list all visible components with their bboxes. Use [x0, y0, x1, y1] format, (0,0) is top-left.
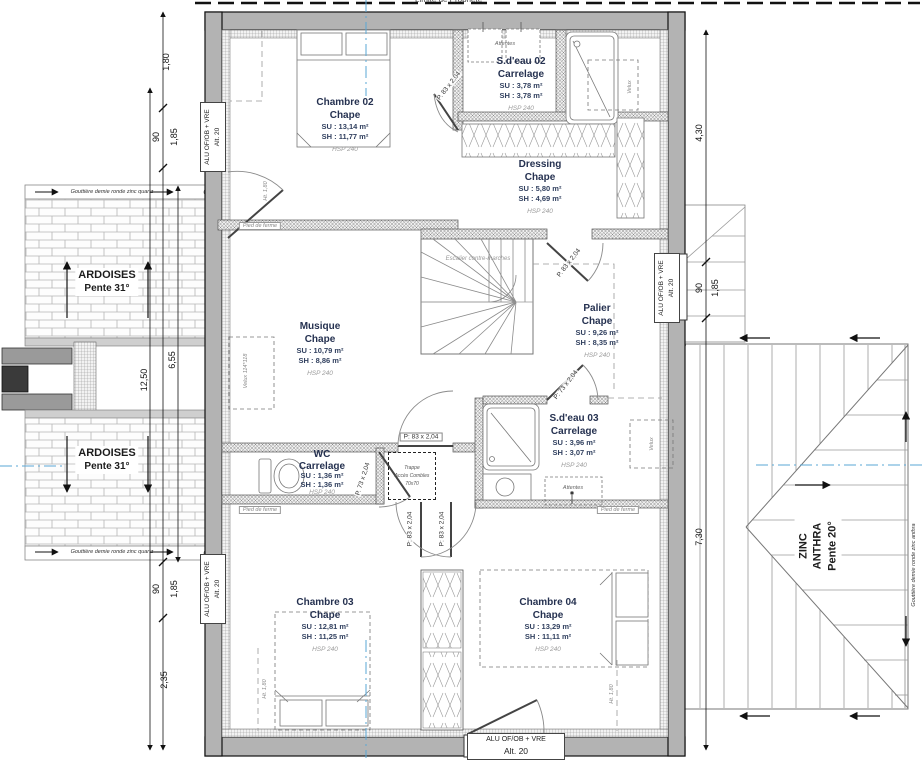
room-label-wc: WC Carrelage SU : 1,36 m² SH : 1,36 m² H…: [299, 449, 345, 497]
closets: [421, 570, 463, 730]
pied-de-ferme-3: Pied de ferme: [597, 506, 639, 514]
gutter-label-bottom: Gouttière demie ronde zinc quartz: [71, 549, 154, 555]
dim-left-1250: 12,50: [139, 369, 149, 392]
velux-label-sdeau03: Velux: [649, 437, 655, 451]
velux-label-sdeau02: Velux: [627, 80, 633, 94]
room-label-musique: Musique Chape SU : 10,79 m² SH : 8,86 m²…: [296, 320, 343, 378]
pied-de-ferme-1: Pied de ferme: [239, 222, 281, 230]
room-name: Chambre 02: [316, 96, 373, 109]
height-line-label-3: Ht. 1,80: [609, 684, 615, 703]
shower-sdeau03: [483, 404, 539, 470]
dim-right-730: 7,30: [694, 528, 704, 546]
dim-left-185: 1,85: [169, 128, 179, 146]
room-label-chambre03: Chambre 03 Chape SU : 12,81 m² SH : 11,2…: [296, 596, 353, 654]
room-label-dressing: Dressing Chape SU : 5,80 m² SH : 4,69 m²…: [519, 158, 562, 216]
velux-musique: [229, 337, 274, 409]
door-label-musique: P: 83 x 2,04: [400, 433, 443, 442]
room-label-palier: Palier Chape SU : 9,26 m² SH : 8,35 m² H…: [576, 302, 619, 360]
shelf-dressing: [617, 118, 644, 218]
stairs-label: Escalier contre-marches: [446, 256, 511, 262]
wardrobe-dressing: [462, 124, 615, 157]
window-label-left-top: ALU OF/OB + VRE Alt. 20: [200, 102, 226, 172]
room-label-sdeau02: S.d'eau 02 Carrelage SU : 3,78 m² SH : 3…: [496, 55, 545, 113]
room-label-chambre04: Chambre 04 Chape SU : 13,29 m² SH : 11,1…: [519, 596, 576, 654]
dim-right-430: 4,30: [694, 124, 704, 142]
dim-right-90: 90: [694, 283, 704, 293]
dim-left-90b: 90: [151, 584, 161, 594]
dim-left-185b: 1,85: [169, 580, 179, 598]
window-label-right: ALU OF/OB + VRE Alt. 20: [654, 253, 680, 323]
roof-label-zinc: ZINC ANTHRA Pente 20°: [795, 513, 842, 579]
height-line-label-2: Ht. 1,80: [262, 679, 268, 698]
room-label-sdeau03: S.d'eau 03 Carrelage SU : 3,96 m² SH : 3…: [549, 412, 598, 470]
attentes-label-top: Attentes: [495, 41, 515, 47]
room-label-chambre02: Chambre 02 Chape SU : 13,14 m² SH : 11,7…: [316, 96, 373, 154]
dim-left-655: 6,55: [167, 351, 177, 369]
window-label-left-bottom: ALU OF/OB + VRE Alt. 20: [200, 554, 226, 624]
door-label-hall-right: P: 83 x 2,04: [439, 511, 446, 548]
basin-sdeau03: [483, 474, 531, 500]
gutter-label-top: Gouttière demie ronde zinc quartz: [71, 189, 154, 195]
door-label-hall-left: P: 83 x 2,04: [407, 511, 414, 548]
dim-right-185: 1,85: [710, 279, 720, 297]
property-line-label: Limite de Propriété: [415, 0, 482, 4]
window-label-bottom: ALU OF/OB + VRE Alt. 20: [467, 733, 565, 760]
pied-de-ferme-2: Pied de ferme: [239, 506, 281, 514]
toilet-wc: [259, 459, 304, 493]
roof-label-ardoises-top: ARDOISES Pente 31°: [75, 268, 138, 296]
floor-plan: Limite de Propriété Chambre 02 Chape SU …: [0, 0, 924, 760]
attentes-label-sdeau03: Attentes: [563, 485, 583, 491]
velux-label-musique: Velux 114*118: [243, 354, 249, 389]
roof-label-ardoises-bottom: ARDOISES Pente 31°: [75, 446, 138, 474]
dim-left-235: 2,35: [159, 671, 169, 689]
dim-left-90: 90: [151, 132, 161, 142]
dim-left-180: 1,80: [161, 53, 171, 71]
left-roof: [2, 185, 210, 560]
gutter-label-right: Gouttière demie ronde zinc anthra: [911, 523, 917, 606]
height-line-label-1: Ht. 1,80: [263, 181, 269, 200]
attic-hatch-label: Trappe Accès Combles 70x70: [388, 452, 436, 500]
